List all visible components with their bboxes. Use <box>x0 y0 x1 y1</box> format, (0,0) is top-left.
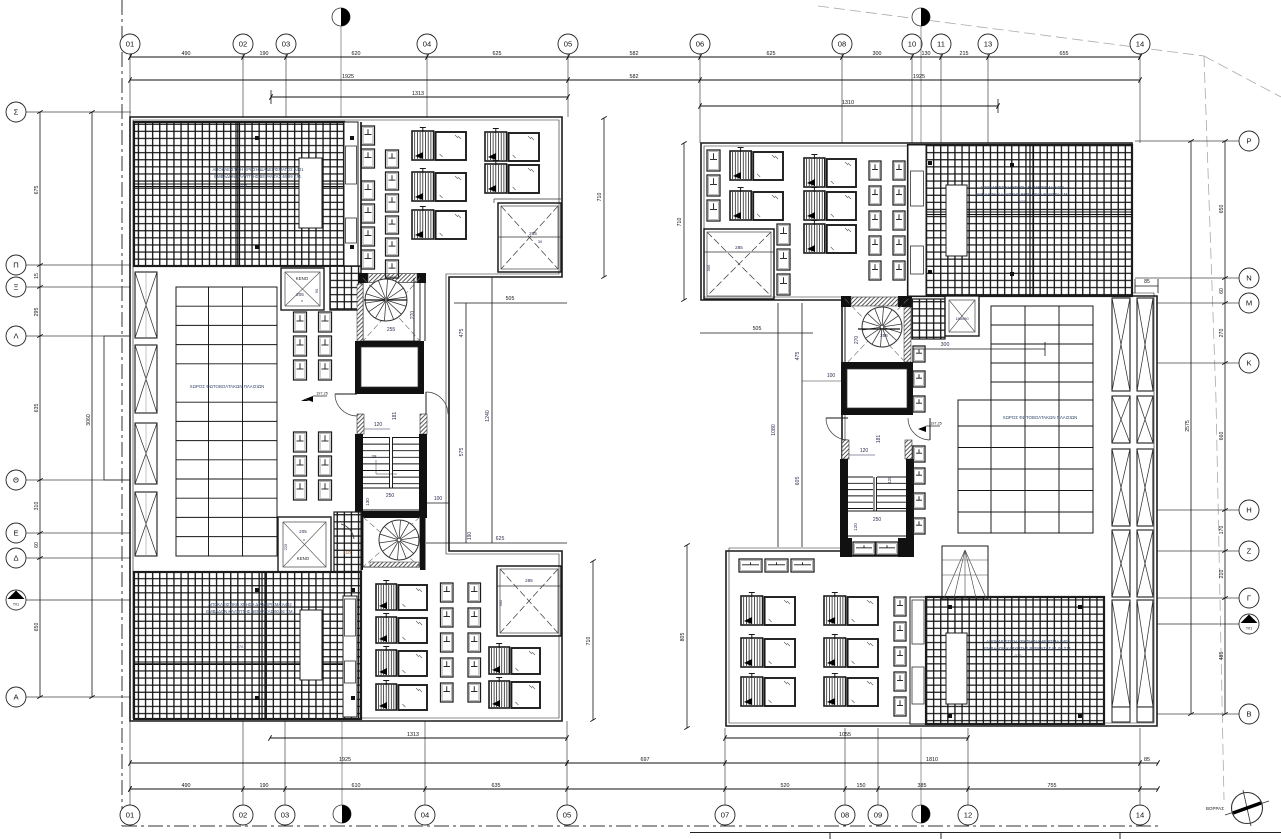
svg-text:805: 805 <box>680 633 686 642</box>
svg-text:072: 072 <box>241 183 248 188</box>
svg-text:110: 110 <box>343 550 351 555</box>
svg-text:710: 710 <box>677 218 683 227</box>
svg-text:T01: T01 <box>1246 627 1252 631</box>
svg-text:Σ: Σ <box>14 108 19 117</box>
svg-text:10: 10 <box>908 40 916 49</box>
svg-text:60: 60 <box>1219 288 1225 294</box>
svg-text:K: K <box>1246 359 1251 368</box>
svg-text:12: 12 <box>964 811 972 820</box>
svg-text:070: 070 <box>1015 653 1022 658</box>
svg-text:1925: 1925 <box>342 74 354 80</box>
svg-text:285: 285 <box>529 231 537 236</box>
svg-text:P: P <box>1246 137 1251 146</box>
svg-text:Θ: Θ <box>13 476 19 485</box>
svg-text:485: 485 <box>1219 652 1225 661</box>
svg-text:1925: 1925 <box>913 74 925 80</box>
svg-text:08: 08 <box>841 811 849 820</box>
svg-text:04: 04 <box>421 811 429 820</box>
svg-text:205: 205 <box>296 292 304 297</box>
svg-text:660: 660 <box>1219 432 1225 441</box>
svg-text:490: 490 <box>182 783 191 789</box>
svg-text:2575: 2575 <box>1185 420 1191 432</box>
svg-text:ΒΟΡΡΑΣ: ΒΟΡΡΑΣ <box>1206 806 1224 811</box>
svg-text:475: 475 <box>795 352 801 361</box>
svg-text:11: 11 <box>937 40 945 49</box>
svg-text:ΧΩΡΟΣ ΦΩΤΟΒΟΛΤΑΚΩΝ ΠΛΑΙΣΙΩΝ: ΧΩΡΟΣ ΦΩΤΟΒΟΛΤΑΚΩΝ ΠΛΑΙΣΙΩΝ <box>1003 415 1078 420</box>
svg-text:1313: 1313 <box>407 732 419 738</box>
svg-text:475: 475 <box>459 329 465 338</box>
svg-text:03: 03 <box>282 40 290 49</box>
svg-text:09: 09 <box>874 811 882 820</box>
svg-text:295: 295 <box>34 308 40 317</box>
svg-text:02: 02 <box>239 811 247 820</box>
svg-text:1310: 1310 <box>842 100 854 106</box>
svg-text:520: 520 <box>781 783 790 789</box>
svg-text:181: 181 <box>876 435 882 444</box>
svg-text:128: 128 <box>887 476 892 484</box>
svg-text:ΑΠΟΚΛΕΙΣΤΙΚΗ ΧΡΗΣΗ ΔΙΑΜΕΡΙΣΜΑ: ΑΠΟΚΛΕΙΣΤΙΚΗ ΧΡΗΣΗ ΔΙΑΜΕΡΙΣΜΑ Α402 <box>208 602 292 607</box>
svg-text:08: 08 <box>838 40 846 49</box>
svg-text:650: 650 <box>34 623 40 632</box>
svg-text:N: N <box>1246 274 1251 283</box>
svg-text:490: 490 <box>182 51 191 57</box>
svg-text:M: M <box>1246 299 1252 308</box>
svg-text:x: x <box>303 537 305 542</box>
svg-text:620: 620 <box>352 51 361 57</box>
svg-text:H: H <box>1246 506 1251 515</box>
svg-text:385: 385 <box>918 783 927 789</box>
svg-text:120: 120 <box>374 422 383 428</box>
svg-text:Π: Π <box>13 261 18 270</box>
svg-text:625: 625 <box>496 536 505 542</box>
svg-text:03: 03 <box>281 811 289 820</box>
svg-text:205: 205 <box>299 529 307 534</box>
svg-text:ΚΕΝΟ: ΚΕΝΟ <box>296 276 309 281</box>
svg-text:310: 310 <box>34 502 40 511</box>
svg-text:250: 250 <box>386 493 395 499</box>
svg-text:02: 02 <box>239 40 247 49</box>
svg-text:197.25: 197.25 <box>930 422 942 426</box>
svg-text:285: 285 <box>525 578 533 583</box>
svg-text:255: 255 <box>387 327 396 333</box>
svg-text:T03: T03 <box>923 16 927 22</box>
svg-text:306: 306 <box>706 264 711 271</box>
svg-text:85: 85 <box>1144 757 1150 763</box>
svg-text:01: 01 <box>126 811 134 820</box>
svg-text:197.25: 197.25 <box>316 392 328 396</box>
svg-text:ΚΕΝΟ: ΚΕΝΟ <box>297 556 310 561</box>
svg-text:ΕΜΒΑΔΟΝ ΚΑΛΥΠΤΗΣ ΒΕΡΑΝΤΑΣ 60.0: ΕΜΒΑΔΟΝ ΚΑΛΥΠΤΗΣ ΒΕΡΑΝΤΑΣ 60.06 Τ.Μ. <box>206 609 293 614</box>
svg-text:B: B <box>1246 710 1251 719</box>
svg-text:582: 582 <box>630 74 639 80</box>
svg-text:60: 60 <box>34 542 40 548</box>
svg-text:305: 305 <box>498 599 503 606</box>
svg-text:170: 170 <box>1219 526 1225 535</box>
svg-text:Ξ: Ξ <box>14 283 19 292</box>
svg-text:285: 285 <box>735 245 743 250</box>
svg-text:582: 582 <box>630 51 639 57</box>
svg-text:505: 505 <box>506 296 515 302</box>
svg-text:Γ: Γ <box>1247 594 1251 603</box>
svg-text:250: 250 <box>873 517 882 523</box>
svg-text:625: 625 <box>493 51 502 57</box>
svg-text:05: 05 <box>563 811 571 820</box>
svg-text:070: 070 <box>237 644 244 649</box>
svg-text:150: 150 <box>857 783 866 789</box>
svg-text:ΑΠΟΚΛΕΙΣΤΙΚΗ ΧΡΗΣΗ ΔΙΑΜΕΡΙΣΜΑ: ΑΠΟΚΛΕΙΣΤΙΚΗ ΧΡΗΣΗ ΔΙΑΜΕΡΙΣΜΑ Β403 <box>986 639 1070 644</box>
svg-text:ΧΩΡΟΣ ΦΩΤΟΒΟΛΤΑΚΩΝ ΠΛΑΙΣΙΩΝ: ΧΩΡΟΣ ΦΩΤΟΒΟΛΤΑΚΩΝ ΠΛΑΙΣΙΩΝ <box>190 384 265 389</box>
svg-text:Δ: Δ <box>13 554 18 563</box>
svg-text:270: 270 <box>1219 329 1225 338</box>
svg-text:1055: 1055 <box>839 732 851 738</box>
svg-text:181: 181 <box>392 412 398 421</box>
svg-text:610: 610 <box>352 783 361 789</box>
svg-text:072: 072 <box>1019 199 1026 204</box>
svg-text:300: 300 <box>941 342 950 348</box>
svg-text:635: 635 <box>34 404 40 413</box>
svg-text:710: 710 <box>597 193 603 202</box>
svg-text:635: 635 <box>492 783 501 789</box>
svg-text:300: 300 <box>873 51 882 57</box>
svg-text:755: 755 <box>1048 783 1057 789</box>
svg-text:3060: 3060 <box>86 414 92 426</box>
svg-text:130: 130 <box>922 51 931 57</box>
svg-text:15: 15 <box>34 273 40 279</box>
svg-text:1810: 1810 <box>926 757 938 763</box>
svg-text:100: 100 <box>827 373 836 379</box>
svg-text:625: 625 <box>767 51 776 57</box>
svg-text:710: 710 <box>586 637 592 646</box>
svg-text:185x90: 185x90 <box>955 316 969 321</box>
svg-text:270: 270 <box>410 311 416 320</box>
svg-text:13: 13 <box>984 40 992 49</box>
svg-text:575: 575 <box>459 448 465 457</box>
svg-text:655: 655 <box>1060 51 1069 57</box>
svg-text:120: 120 <box>853 523 858 531</box>
svg-text:120: 120 <box>860 448 869 454</box>
svg-text:x: x <box>301 298 303 303</box>
svg-text:E: E <box>13 529 18 538</box>
svg-text:190: 190 <box>260 51 269 57</box>
svg-text:1080: 1080 <box>771 424 777 436</box>
svg-text:650: 650 <box>1219 205 1225 214</box>
svg-text:T01: T01 <box>13 603 19 607</box>
svg-text:ΑΠΟΚΛΕΙΣΤΙΚΗ ΧΡΗΣΗ ΔΙΑΔΕΡΙΣΜΑΤ: ΑΠΟΚΛΕΙΣΤΙΚΗ ΧΡΗΣΗ ΔΙΑΔΕΡΙΣΜΑΤΟΣ Α401 <box>213 167 305 172</box>
svg-text:07: 07 <box>721 811 729 820</box>
svg-text:85: 85 <box>1144 279 1150 285</box>
svg-text:Z: Z <box>1247 547 1252 556</box>
svg-text:1240: 1240 <box>485 410 491 422</box>
svg-text:130: 130 <box>365 498 370 506</box>
svg-text:605: 605 <box>795 477 801 486</box>
svg-text:28: 28 <box>372 454 377 459</box>
svg-text:215: 215 <box>960 51 969 57</box>
svg-text:ΕΜΒΑΔΟΝ ΚΑΛΥΠΤΗΣ ΒΕΡΑΝΤΑΣ 81.0: ΕΜΒΑΔΟΝ ΚΑΛΥΠΤΗΣ ΒΕΡΑΝΤΑΣ 81.06 Τ.Μ. <box>984 646 1071 651</box>
svg-text:T02: T02 <box>343 16 347 22</box>
svg-text:100: 100 <box>434 496 443 502</box>
svg-text:697: 697 <box>641 757 650 763</box>
svg-text:14: 14 <box>1136 811 1144 820</box>
svg-text:ΑΠΟΚΛΕΙΣΤΙΚΗ ΧΡΗΣΗ ΔΙΑΜΕΡΙΣΜΑ: ΑΠΟΚΛΕΙΣΤΙΚΗ ΧΡΗΣΗ ΔΙΑΜΕΡΙΣΜΑ Β402 <box>980 185 1064 190</box>
svg-text:1313: 1313 <box>412 91 424 97</box>
svg-text:04: 04 <box>423 40 431 49</box>
svg-text:225: 225 <box>283 543 288 550</box>
svg-text:190: 190 <box>260 783 269 789</box>
svg-text:210: 210 <box>1219 570 1225 579</box>
svg-text:14: 14 <box>1136 40 1144 49</box>
svg-text:675: 675 <box>34 186 40 195</box>
svg-text:05: 05 <box>564 40 572 49</box>
svg-text:T02: T02 <box>344 813 348 819</box>
svg-text:255: 255 <box>880 333 888 338</box>
svg-text:06: 06 <box>696 40 704 49</box>
svg-text:ΕΜΒΑΔΟΝ ΚΑΛΥΠΤΗΣ ΒΕΡΑΝΤΑΣ 46.9: ΕΜΒΑΔΟΝ ΚΑΛΥΠΤΗΣ ΒΕΡΑΝΤΑΣ 46.99 Τ.Μ. <box>214 174 301 179</box>
svg-text:90: 90 <box>314 288 319 293</box>
svg-text:T03: T03 <box>923 813 927 819</box>
svg-text:30: 30 <box>538 239 543 244</box>
svg-text:ΕΜΒΑΔΟΝ ΚΑΛΥΠΤΗΣ ΒΕΡΑΝΤΑΣ ΕΞΩΣ: ΕΜΒΑΔΟΝ ΚΑΛΥΠΤΗΣ ΒΕΡΑΝΤΑΣ ΕΞΩΣΤΑ Τ.Μ. <box>976 192 1069 197</box>
svg-text:190: 190 <box>467 532 473 541</box>
svg-text:1925: 1925 <box>339 757 351 763</box>
svg-text:270: 270 <box>854 336 860 345</box>
svg-text:01: 01 <box>126 40 134 49</box>
svg-text:505: 505 <box>753 326 762 332</box>
